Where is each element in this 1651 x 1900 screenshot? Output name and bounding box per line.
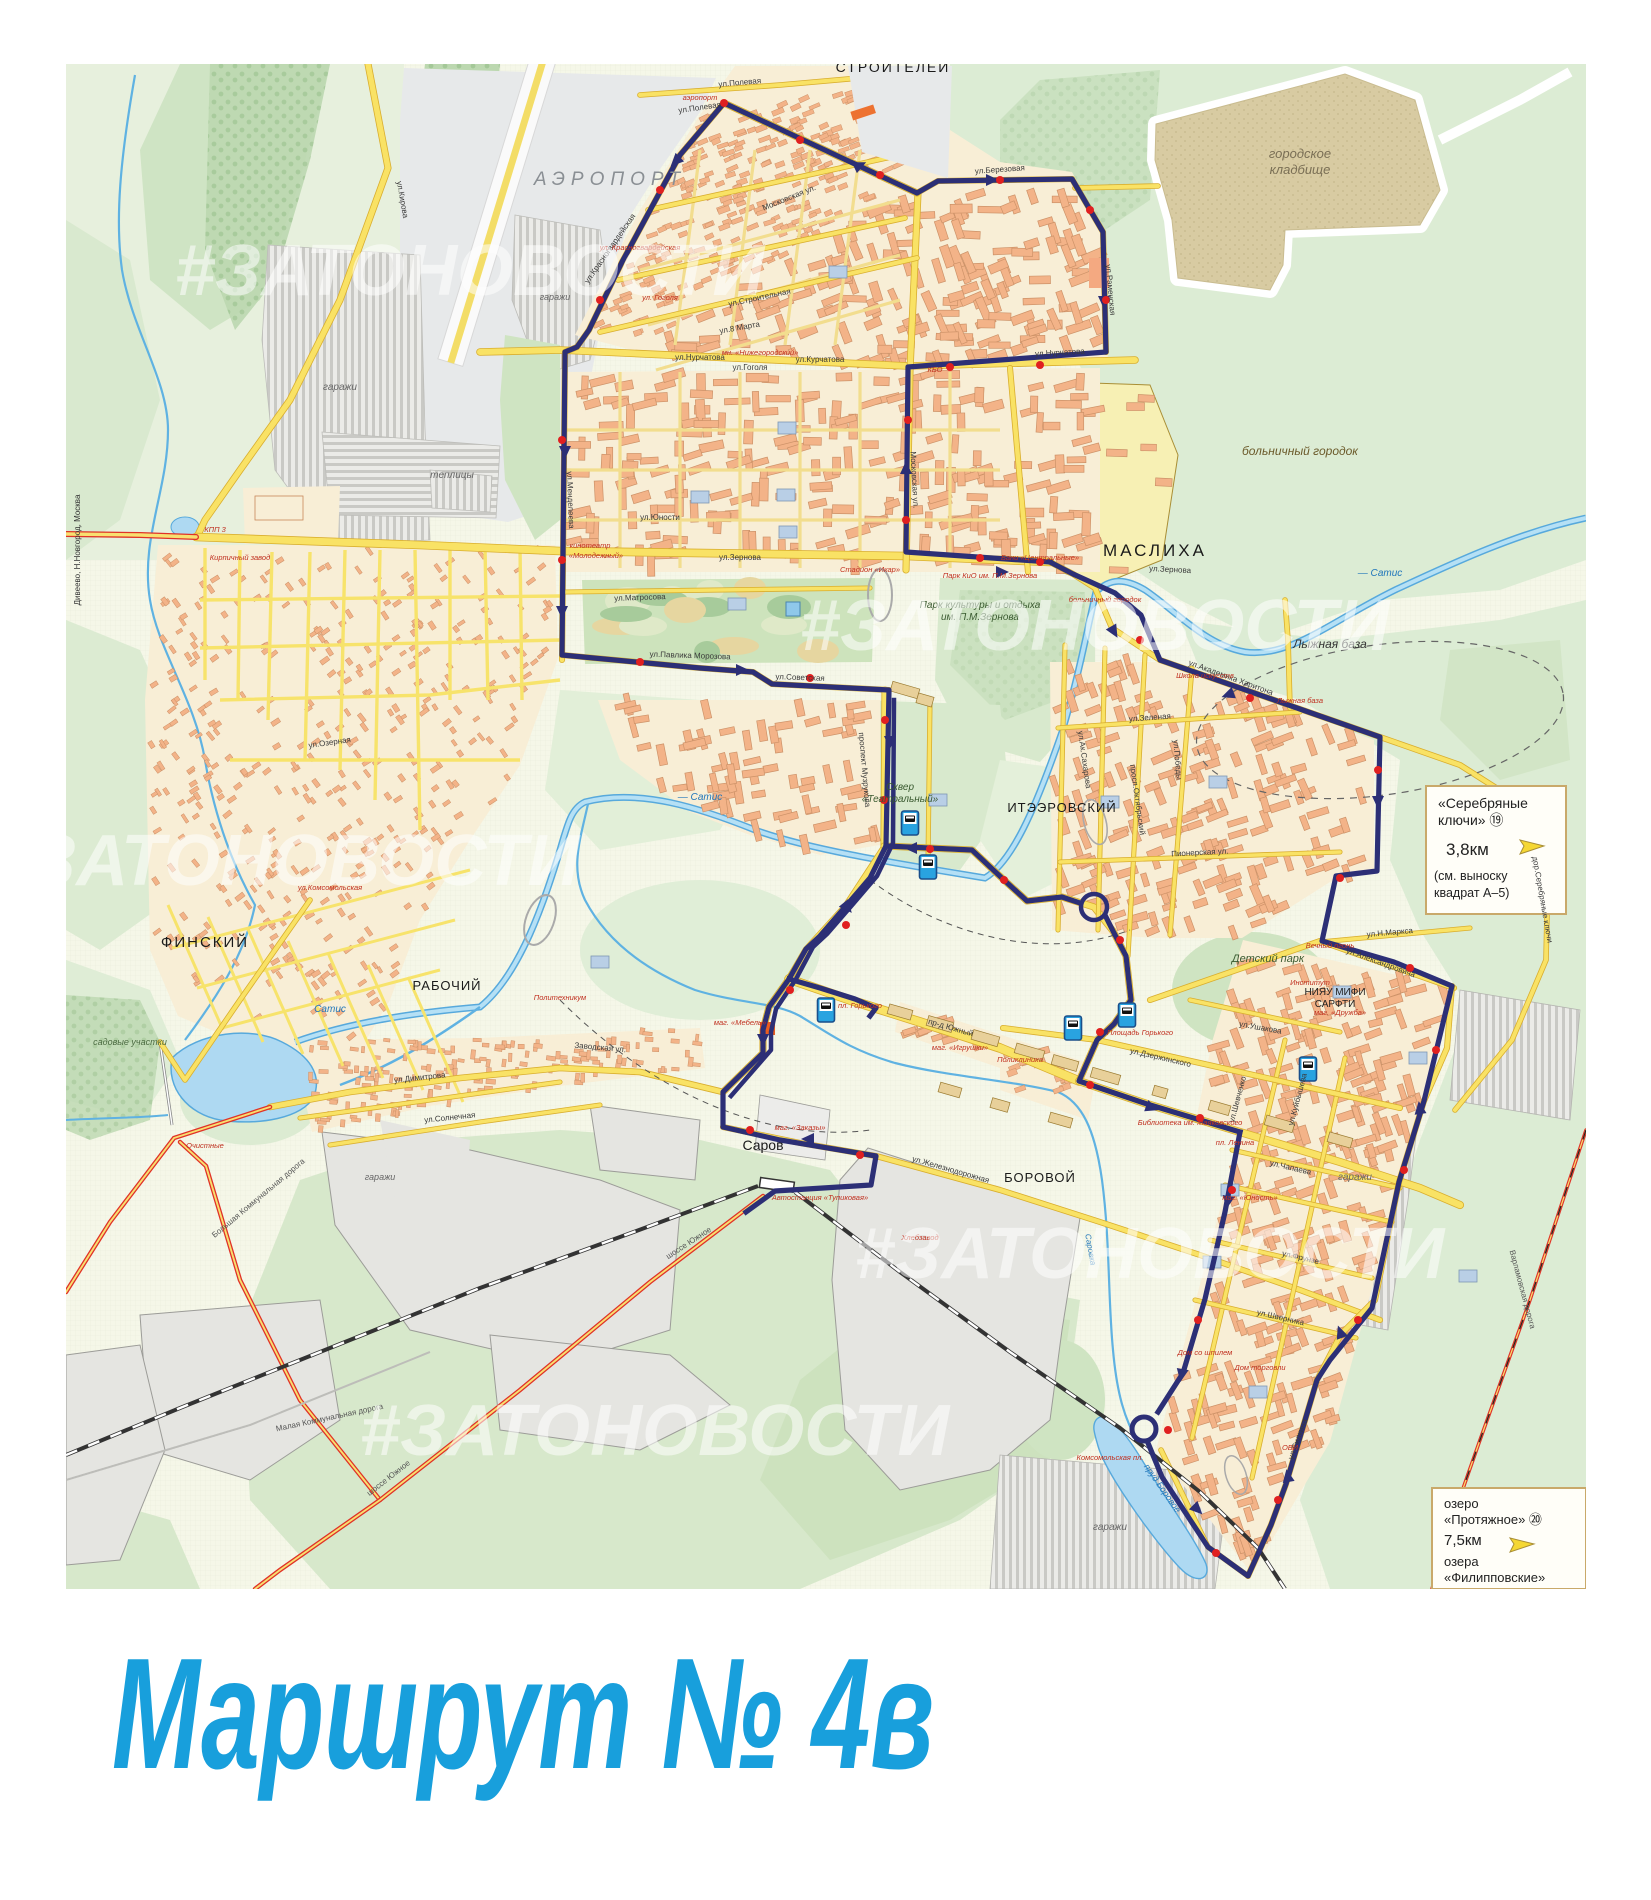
svg-text:#ЗАТОНОВОСТИ: #ЗАТОНОВОСТИ <box>360 1391 952 1471</box>
svg-text:Поликлиника: Поликлиника <box>997 1055 1043 1064</box>
svg-text:пл. Ленина: пл. Ленина <box>1216 1138 1254 1147</box>
svg-text:Автостанция «Тупиковая»: Автостанция «Тупиковая» <box>771 1193 868 1202</box>
svg-text:гаражи: гаражи <box>1338 1172 1372 1183</box>
svg-text:ул.Советская: ул.Советская <box>775 672 825 683</box>
svg-text:«Филипповские»: «Филипповские» <box>1444 1570 1545 1585</box>
svg-text:гаражи: гаражи <box>365 1172 396 1182</box>
svg-text:Детский парк: Детский парк <box>1230 953 1305 965</box>
svg-text:маг. «Заказы»: маг. «Заказы» <box>775 1123 826 1132</box>
svg-text:Площадь Горького: Площадь Горького <box>1107 1028 1173 1037</box>
svg-text:Маршрут № 4в: Маршрут № 4в <box>112 1626 934 1802</box>
svg-text:ключи» ⑲: ключи» ⑲ <box>1438 812 1503 828</box>
svg-text:ул.Зернова: ул.Зернова <box>719 553 761 562</box>
svg-text:МАСЛИХА: МАСЛИХА <box>1103 541 1207 560</box>
svg-text:#ЗАТОНОВОСТИ: #ЗАТОНОВОСТИ <box>175 231 767 311</box>
svg-text:ФИНСКИЙ: ФИНСКИЙ <box>161 933 249 951</box>
svg-text:теплицы: теплицы <box>430 470 474 481</box>
svg-text:Библиотека им. Маяковского: Библиотека им. Маяковского <box>1138 1118 1243 1127</box>
svg-text:мн. «Нижегородский»: мн. «Нижегородский» <box>722 348 799 357</box>
svg-text:маг. «Игрушки»: маг. «Игрушки» <box>932 1043 988 1052</box>
svg-text:Лыжная база: Лыжная база <box>1276 696 1323 705</box>
svg-text:Комсомольская пл.: Комсомольская пл. <box>1077 1453 1144 1462</box>
svg-text:Политехникум: Политехникум <box>534 993 586 1002</box>
svg-text:РАБОЧИЙ: РАБОЧИЙ <box>412 978 481 993</box>
svg-text:маг. «Мебель»: маг. «Мебель» <box>714 1018 766 1027</box>
svg-text:кинотеатр: кинотеатр <box>570 541 611 550</box>
svg-text:Дом со шпилем: Дом со шпилем <box>1177 1348 1233 1357</box>
svg-text:озера: озера <box>1444 1554 1479 1569</box>
svg-text:АЭРОПОРТ: АЭРОПОРТ <box>533 169 686 190</box>
svg-text:маг. «Юность»: маг. «Юность» <box>1222 1193 1277 1202</box>
svg-text:Парк КиО им. П.М.Зернова: Парк КиО им. П.М.Зернова <box>943 571 1037 580</box>
svg-text:(см. выноску: (см. выноску <box>1434 869 1508 883</box>
svg-text:кладбище: кладбище <box>1270 162 1331 177</box>
svg-text:Бани «Центральные»: Бани «Центральные» <box>1001 553 1079 562</box>
svg-text:Дивеево, Н.Новгород, Москва: Дивеево, Н.Новгород, Москва <box>73 494 82 605</box>
svg-text:«Театральный»: «Театральный» <box>862 794 939 805</box>
svg-text:Очистные: Очистные <box>186 1141 224 1150</box>
svg-text:Сатис: Сатис <box>314 1004 346 1015</box>
svg-text:квадрат А–5): квадрат А–5) <box>1434 886 1509 900</box>
svg-text:«Протяжное» ⑳: «Протяжное» ⑳ <box>1444 1512 1542 1527</box>
svg-text:маг. «Дружба»: маг. «Дружба» <box>1314 1008 1366 1017</box>
svg-text:гаражи: гаражи <box>1093 1522 1127 1533</box>
svg-text:ул.Курчатова: ул.Курчатова <box>796 355 845 364</box>
svg-text:— Сатис: — Сатис <box>1357 568 1403 579</box>
svg-text:#ЗАТОНОВОСТИ: #ЗАТОНОВОСТИ <box>0 821 582 901</box>
svg-text:Сквер: Сквер <box>886 782 915 793</box>
svg-text:пл. Горького: пл. Горького <box>838 1001 882 1010</box>
svg-text:ОБИ: ОБИ <box>1282 1443 1299 1452</box>
svg-text:гаражи: гаражи <box>323 382 357 393</box>
svg-text:Школа искусств: Школа искусств <box>1176 671 1234 680</box>
svg-text:«Молодежный»: «Молодежный» <box>569 551 623 560</box>
svg-text:Кирпичный завод: Кирпичный завод <box>210 553 270 562</box>
svg-text:ИТЭЭРОВСКИЙ: ИТЭЭРОВСКИЙ <box>1007 800 1116 815</box>
svg-text:3,8км: 3,8км <box>1446 840 1489 859</box>
svg-text:КПП 3: КПП 3 <box>204 525 226 534</box>
svg-text:ул.Гоголя: ул.Гоголя <box>733 363 768 372</box>
svg-text:#ЗАТОНОВОСТИ: #ЗАТОНОВОСТИ <box>855 1214 1447 1294</box>
svg-text:городское: городское <box>1269 146 1331 161</box>
svg-text:БОРОВОЙ: БОРОВОЙ <box>1004 1170 1076 1185</box>
svg-text:Саров: Саров <box>742 1137 783 1153</box>
svg-text:#ЗАТОНОВОСТИ: #ЗАТОНОВОСТИ <box>800 586 1392 666</box>
svg-text:ул.Матросова: ул.Матросова <box>614 592 666 603</box>
svg-text:Стадион «Икар»: Стадион «Икар» <box>840 565 900 574</box>
svg-text:озеро: озеро <box>1444 1496 1479 1511</box>
svg-text:ул.Нурчатова: ул.Нурчатова <box>675 353 725 362</box>
svg-text:ул.Юности: ул.Юности <box>640 513 680 522</box>
svg-text:7,5км: 7,5км <box>1444 1532 1482 1549</box>
svg-text:садовые участки: садовые участки <box>93 1037 167 1047</box>
svg-text:Институт: Институт <box>1290 978 1330 987</box>
svg-text:— Сатис: — Сатис <box>677 792 723 803</box>
svg-text:Дом торговли: Дом торговли <box>1233 1363 1286 1372</box>
svg-text:«Серебряные: «Серебряные <box>1438 795 1528 811</box>
svg-text:больничный городок: больничный городок <box>1242 444 1359 458</box>
svg-text:НИЯУ МИФИ: НИЯУ МИФИ <box>1304 987 1365 998</box>
svg-text:Вечный огонь: Вечный огонь <box>1306 941 1355 950</box>
svg-text:аэропорт: аэропорт <box>683 93 718 102</box>
svg-text:КБО: КБО <box>928 365 943 374</box>
